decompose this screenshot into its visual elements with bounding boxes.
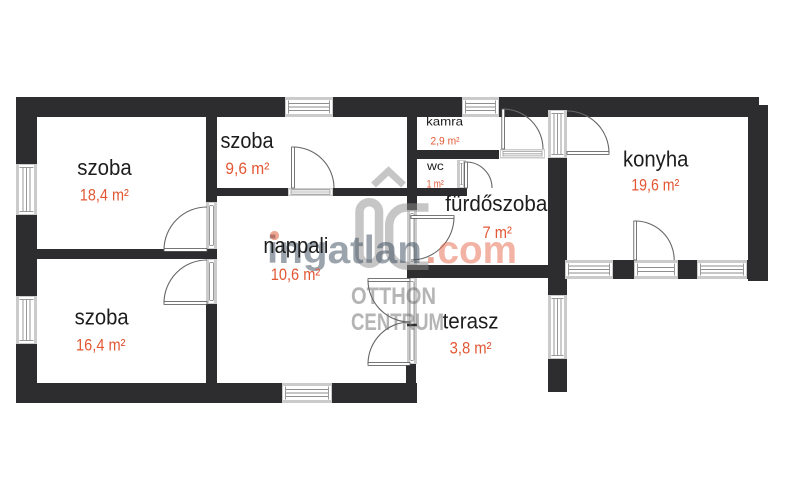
svg-text:10,6 m²: 10,6 m² (271, 265, 321, 284)
svg-text:.: . (426, 229, 437, 272)
svg-text:CENTRUM: CENTRUM (351, 309, 444, 336)
svg-text:szoba: szoba (75, 305, 130, 330)
svg-text:3,8 m²: 3,8 m² (450, 339, 492, 358)
svg-text:1 m²: 1 m² (427, 178, 444, 190)
svg-text:fürdőszoba: fürdőszoba (445, 191, 548, 216)
svg-text:szoba: szoba (221, 128, 275, 153)
svg-text:7 m²: 7 m² (483, 223, 513, 242)
svg-text:terasz: terasz (443, 309, 499, 334)
svg-text:2,9 m²: 2,9 m² (431, 135, 460, 147)
svg-text:19,6 m²: 19,6 m² (631, 175, 679, 194)
svg-text:18,4 m²: 18,4 m² (80, 186, 129, 205)
svg-text:OTTHON: OTTHON (351, 283, 436, 310)
svg-text:kamra: kamra (426, 114, 463, 128)
svg-text:konyha: konyha (623, 147, 689, 172)
svg-text:wc: wc (426, 159, 444, 173)
svg-text:szoba: szoba (77, 155, 132, 180)
svg-text:16,4 m²: 16,4 m² (76, 336, 126, 355)
svg-text:nappali: nappali (263, 233, 328, 258)
svg-text:9,6 m²: 9,6 m² (225, 159, 269, 178)
